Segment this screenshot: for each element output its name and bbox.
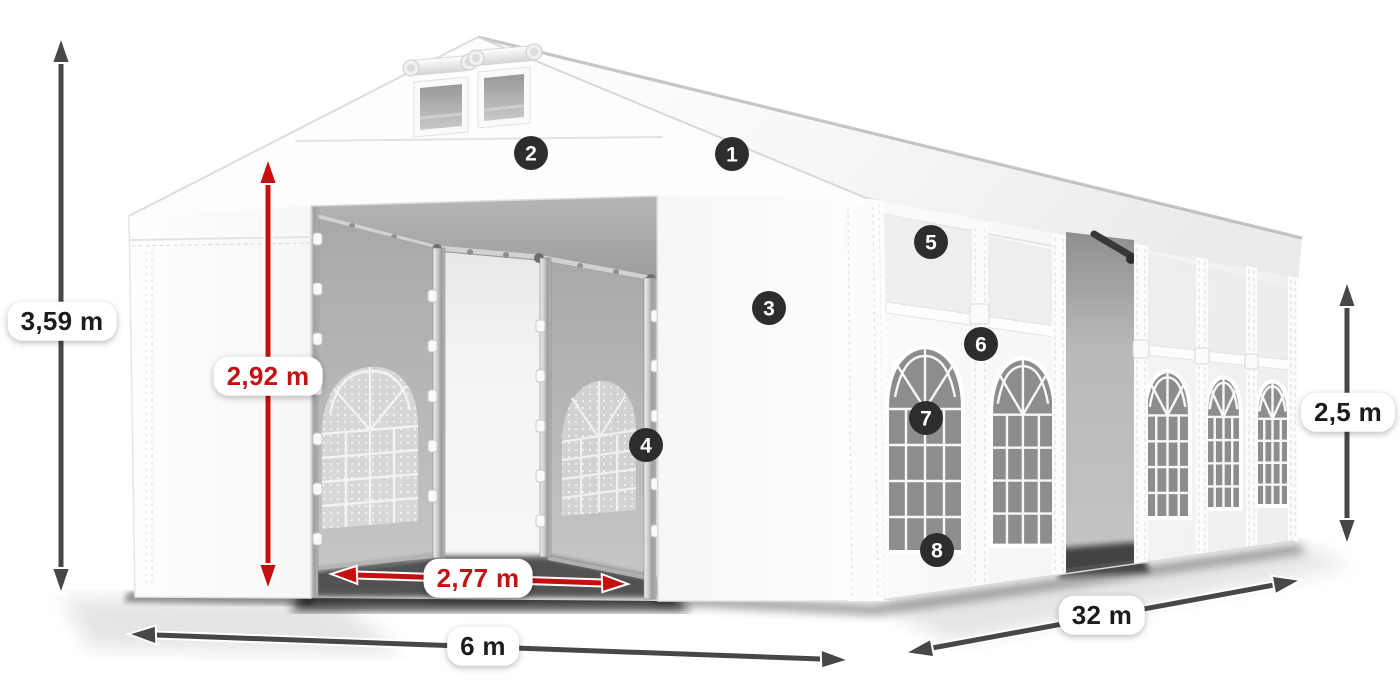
side-window-5 xyxy=(1256,381,1289,506)
side-window-3 xyxy=(1145,371,1190,518)
dimension-label-side-length: 32 m xyxy=(1059,596,1145,635)
dimension-label-entrance-width: 2,77 m xyxy=(424,559,533,598)
side-window-4 xyxy=(1206,377,1241,509)
dimension-label-total-height: 3,59 m xyxy=(8,302,117,341)
pole-door-right xyxy=(540,258,551,557)
dimension-label-entrance-height: 2,92 m xyxy=(214,357,323,396)
marker-5: 5 xyxy=(914,225,948,259)
door-window-left xyxy=(322,367,418,529)
marker-1-number: 1 xyxy=(726,144,738,167)
marker-4-number: 4 xyxy=(640,435,652,458)
marker-4: 4 xyxy=(629,428,663,462)
side-window-2 xyxy=(991,358,1055,546)
tent-illustration: 1 2 3 4 5 6 7 8 xyxy=(0,0,1400,700)
front-entrance-interior xyxy=(307,196,660,601)
marker-7-number: 7 xyxy=(920,408,932,431)
marker-2: 2 xyxy=(514,136,548,170)
front-wall-right xyxy=(657,196,871,601)
entrance-door-left xyxy=(313,217,440,578)
marker-1: 1 xyxy=(715,137,749,171)
side-window-1 xyxy=(887,347,963,552)
entrance-door-right xyxy=(545,261,651,576)
marker-3-number: 3 xyxy=(763,298,775,321)
marker-8: 8 xyxy=(920,533,954,567)
marker-2-number: 2 xyxy=(525,143,537,166)
marker-5-number: 5 xyxy=(925,232,937,255)
corner-strap xyxy=(843,202,884,601)
marker-7: 7 xyxy=(909,401,943,435)
tent-dimension-diagram: 1 2 3 4 5 6 7 8 3,59 m 2,92 xyxy=(0,0,1400,700)
dimension-label-side-height: 2,5 m xyxy=(1301,393,1395,432)
marker-6: 6 xyxy=(964,327,998,361)
marker-8-number: 8 xyxy=(931,540,943,563)
dimension-label-gable-width: 6 m xyxy=(447,627,519,666)
gable-vent-left xyxy=(403,54,477,137)
marker-3: 3 xyxy=(752,291,786,325)
door-window-right xyxy=(562,381,636,516)
front-wall-left xyxy=(129,206,311,598)
marker-6-number: 6 xyxy=(975,334,987,357)
